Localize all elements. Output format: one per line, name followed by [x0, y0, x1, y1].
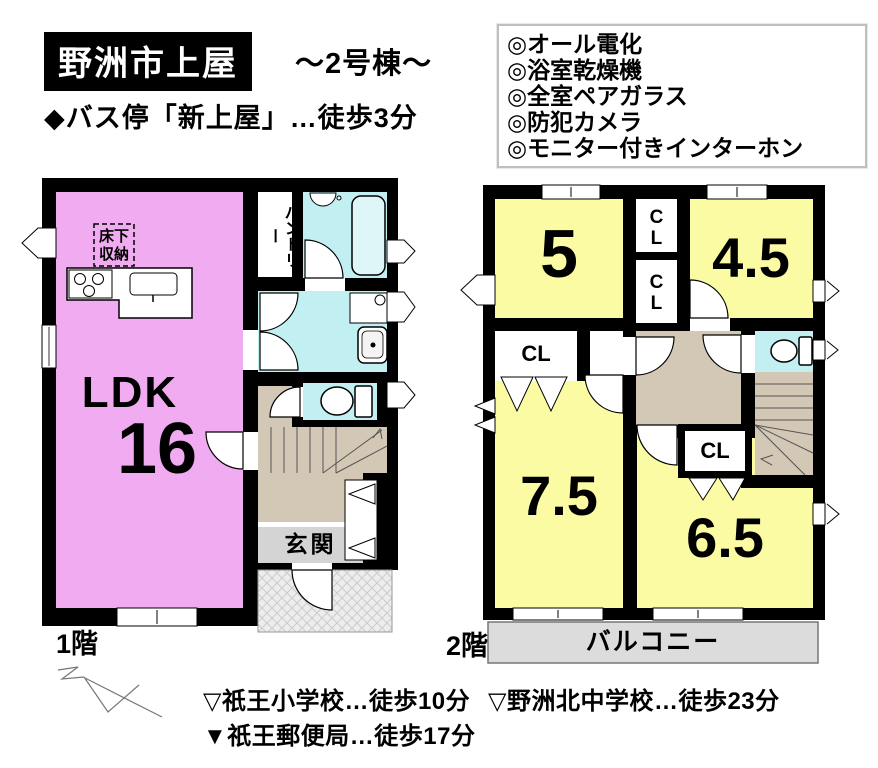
balcony-label: バルコニー [488, 629, 818, 655]
window-right-c [813, 503, 825, 525]
school-note-1: ▽祇王小学校…徒歩10分 [203, 681, 470, 716]
feature-item: ◎浴室乾燥機 [507, 57, 857, 83]
ldk-size-label: 16 [97, 412, 217, 488]
window-right-b [813, 340, 825, 360]
underfloor-storage-label: 床下 収納 [96, 228, 132, 264]
window-arrow-toilet [387, 382, 415, 408]
features-box: ◎オール電化 ◎浴室乾燥機 ◎全室ペアガラス ◎防犯カメラ ◎モニター付きインタ… [497, 24, 867, 168]
pantry-label: パントリー [264, 197, 298, 275]
bathtub-icon [352, 196, 385, 275]
stairs-2f [755, 372, 813, 475]
floor2-plan: 5 CL CL 4.5 CL 7.5 CL 6.5 バルコニー [483, 185, 825, 665]
building-number-subtitle: ～2号棟～ [295, 40, 432, 82]
window-arrow-left [22, 228, 56, 258]
floor1-plan: 床下 収納 パントリー LDK 16 玄関 [42, 178, 398, 648]
feature-item: ◎モニター付きインターホン [507, 135, 857, 161]
bus-stop-note: ◆バス停「新上屋」…徒歩3分 [44, 96, 418, 135]
room-5-label: 5 [501, 219, 617, 290]
floor1-caption: 1階 [56, 622, 98, 661]
toilet-icon-1f [321, 386, 372, 417]
room-6-5-label: 6.5 [653, 509, 797, 568]
entrance-label: 玄関 [258, 532, 363, 556]
page-title: 野洲市上屋 [44, 32, 252, 91]
feature-item: ◎オール電化 [507, 31, 857, 57]
feature-item: ◎防犯カメラ [507, 109, 857, 135]
kitchen-sink-icon [130, 273, 177, 295]
room-4-5-label: 4.5 [678, 229, 824, 288]
feature-item: ◎全室ペアガラス [507, 83, 857, 109]
room-7-5-label: 7.5 [497, 467, 621, 526]
closet-center-label: CL [683, 439, 747, 462]
closet-label-b: CL [646, 269, 666, 317]
window-arrow-washroom [387, 292, 415, 322]
post-office-note: ▼祇王郵便局…徒歩17分 [203, 716, 475, 751]
window-arrow-bath [387, 240, 415, 263]
floor2-caption: 2階 [446, 624, 488, 663]
window-arrow-left-2f [461, 275, 495, 305]
closet-left-label: CL [495, 342, 577, 365]
closet-label-a: CL [646, 205, 666, 251]
school-note-2: ▽野洲北中学校…徒歩23分 [488, 681, 780, 716]
toilet-icon-2f [771, 337, 812, 365]
north-arrow [50, 660, 180, 730]
